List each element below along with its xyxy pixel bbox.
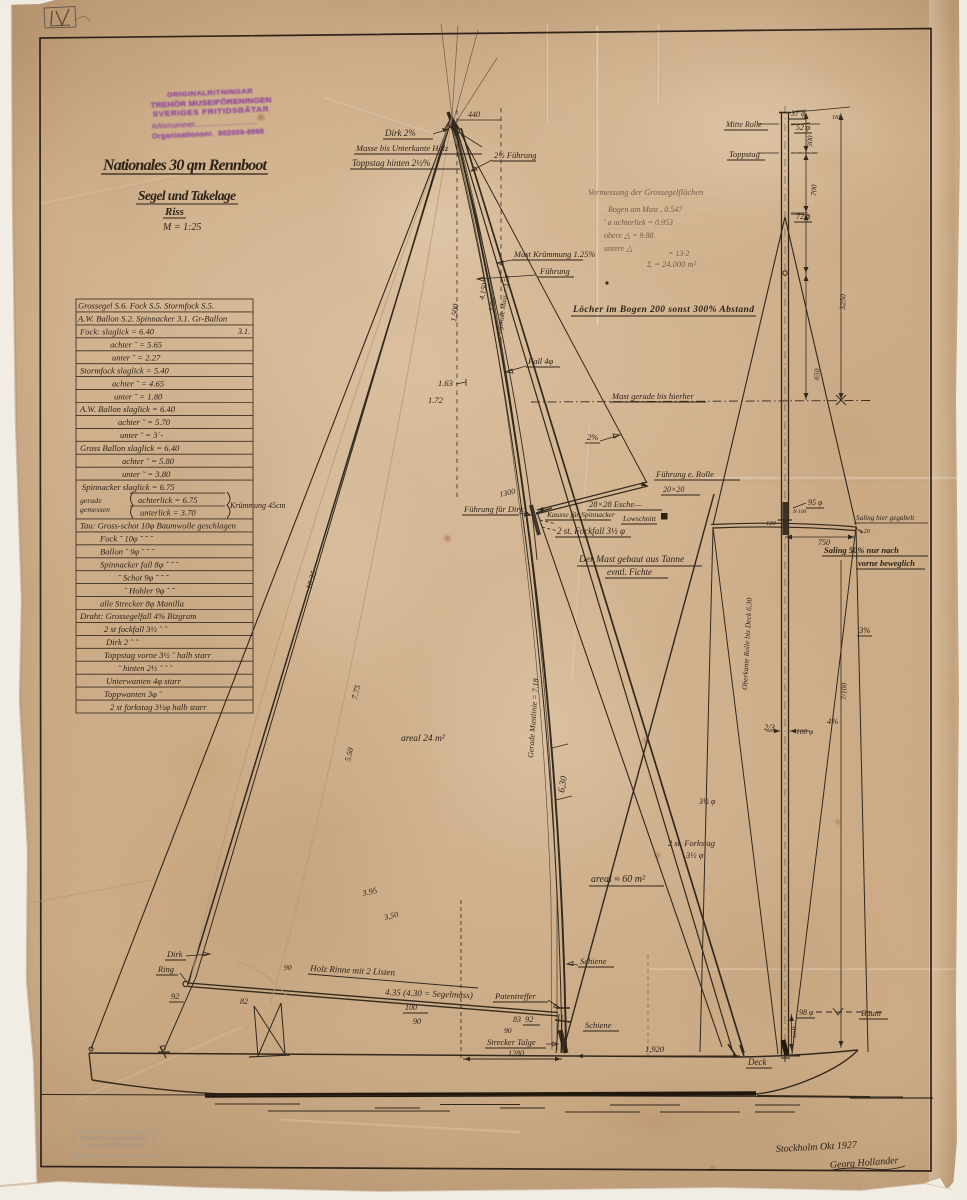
svg-text:Saling hier gegabelt: Saling hier gegabelt [856, 514, 915, 522]
svg-text:650: 650 [812, 368, 822, 380]
svg-text:Fock: slaglick = 6.: Fock: slaglick = 6.40 [79, 327, 155, 337]
svg-text:3/50: 3/50 [487, 297, 498, 313]
svg-text:Draht: Grossegelfall 4% B: Draht: Grossegelfall 4% Bizgram [79, 611, 196, 621]
svg-text:Lowschnitt: Lowschnitt [622, 514, 657, 523]
svg-text:Grossegel S.6. Fock S.5. Storm: Grossegel S.6. Fock S.5. Stormfock S.5. [78, 301, 214, 311]
svg-text:Toppstag hinten 2½%: Toppstag hinten 2½% [352, 158, 430, 168]
svg-text:Toppstag: Toppstag [729, 149, 760, 159]
svg-text:obere △ = 9.88: obere △ = 9.88 [604, 231, 653, 240]
svg-text:Tau: Gross-schot 10φ Baumwol: Tau: Gross-schot 10φ Baumwolle geschlage… [80, 521, 236, 531]
svg-text:unter ˜ = 2.27: unter ˜ = 2.27 [112, 353, 161, 363]
svg-text:1.63: 1.63 [438, 378, 453, 388]
svg-text:6,30: 6,30 [557, 775, 570, 793]
svg-text:Nationales 30 qm Rennboot: Nationales 30 qm Rennboot [102, 157, 268, 174]
svg-text:300: 300 [805, 135, 815, 148]
svg-text:Oberkante Rolle bis Deck 6.30: Oberkante Rolle bis Deck 6.30 [740, 597, 754, 690]
svg-text:achterlick = 6.75: achterlick = 6.75 [138, 495, 198, 505]
svg-text:Dirk 2 ˜ ˜: Dirk 2 ˜ ˜ [105, 637, 139, 647]
svg-text:1300: 1300 [498, 487, 516, 499]
svg-text:Dirk: Dirk [166, 949, 183, 959]
svg-text:4.150: 4.150 [477, 282, 489, 300]
svg-text:7.75: 7.75 [349, 684, 362, 701]
svg-text:↘20: ↘20 [858, 528, 871, 535]
svg-text:2 st fockfall 3½ ˜ ˜: 2 st fockfall 3½ ˜ ˜ [104, 624, 168, 634]
svg-text:Spinnacker fall 8φ ˜: Spinnacker fall 8φ ˜ ˜ ˜ [100, 560, 180, 570]
svg-text:2 st. Forkstag: 2 st. Forkstag [668, 838, 715, 848]
svg-text:Gerade Mastlinie = 7.18: Gerade Mastlinie = 7.18 [526, 678, 541, 758]
svg-text:1,920: 1,920 [645, 1044, 665, 1054]
svg-text:gemessen: gemessen [80, 505, 110, 514]
svg-text:82: 82 [240, 997, 248, 1006]
svg-text:Riss: Riss [164, 206, 184, 218]
svg-text:2½ Führung: 2½ Führung [494, 150, 537, 160]
svg-text:Führung: Führung [539, 266, 570, 276]
svg-text:N·100: N·100 [792, 509, 807, 515]
svg-text:3250: 3250 [838, 294, 848, 311]
svg-text:Bogen am Mast , 0.547: Bogen am Mast , 0.547 [608, 205, 683, 214]
svg-text:unterlick = 3.70: unterlick = 3.70 [140, 508, 196, 518]
svg-text:Gross Ballon slaglick = 6.40: Gross Ballon slaglick = 6.40 [80, 443, 180, 453]
svg-text:Schiene: Schiene [580, 956, 607, 966]
svg-text:Löcher im Bogen 200 sonst 300%: Löcher im Bogen 200 sonst 300% Abstand [572, 305, 754, 315]
svg-text:M = 1:25: M = 1:25 [162, 222, 201, 233]
svg-text:52 φ: 52 φ [796, 123, 811, 132]
svg-text:Σ = 24.000 m²: Σ = 24.000 m² [646, 259, 697, 269]
svg-text:Ring: Ring [157, 964, 174, 974]
svg-text:evntl. Fichte: evntl. Fichte [607, 567, 652, 577]
svg-text:unter ˜ = 3´-: unter ˜ = 3´- [120, 430, 163, 440]
svg-text:2%: 2% [587, 432, 598, 442]
svg-text:vorne beweglich: vorne beweglich [858, 558, 915, 568]
svg-text:Schiene: Schiene [585, 1020, 612, 1030]
svg-text:37 φ: 37 φ [790, 109, 806, 118]
svg-text:Der Mast gebaut aus Tanne: Der Mast gebaut aus Tanne [578, 555, 684, 565]
svg-text:gerade: gerade [80, 496, 102, 505]
svg-text:Spinnacker slaglick = 6.75: Spinnacker slaglick = 6.75 [82, 482, 175, 492]
svg-text:90: 90 [413, 1017, 421, 1026]
svg-text:˜ Hohler 9φ ˜ ˜: ˜ Hohler 9φ ˜ ˜ [124, 585, 176, 595]
svg-text:Toppwanten 3φ ˜: Toppwanten 3φ ˜ [104, 689, 163, 699]
svg-text:Kausse für Spinnacker: Kausse für Spinnacker [546, 510, 615, 519]
svg-text:achter ˜ = 5.80: achter ˜ = 5.80 [122, 456, 175, 466]
svg-text:alle Strecker 8φ Manilla: alle Strecker 8φ Manilla [100, 598, 184, 608]
svg-text:550: 550 [789, 1026, 798, 1038]
svg-text:= 13·2: = 13·2 [668, 249, 689, 258]
svg-text:10.35: 10.35 [303, 569, 318, 590]
svg-text:3.95: 3.95 [360, 885, 378, 898]
svg-text:achter ˜ = 4.65: achter ˜ = 4.65 [112, 378, 165, 388]
svg-text:Ballon ˜ 9φ ˜: Ballon ˜ 9φ ˜ ˜ ˜ [100, 547, 155, 557]
svg-text:Mast Krümmung 1.25%: Mast Krümmung 1.25% [513, 249, 595, 259]
svg-text:90: 90 [504, 1026, 512, 1035]
svg-text:Stockholm Okt 1927: Stockholm Okt 1927 [776, 1140, 859, 1155]
svg-text:160: 160 [832, 114, 843, 121]
svg-text:Fall 4φ: Fall 4φ [527, 356, 554, 366]
svg-text:˜ hinten 2½ ˜ ˜: ˜ hinten 2½ ˜ ˜ ˜ [118, 663, 174, 673]
svg-text:unter ˜ = 1.80: unter ˜ = 1.80 [114, 391, 163, 401]
svg-text:3,50: 3,50 [382, 910, 399, 922]
svg-text:2 st forkstag 3½φ halb sta: 2 st forkstag 3½φ halb starr [110, 702, 207, 712]
svg-text:100 φ: 100 φ [796, 727, 813, 736]
svg-text:3%: 3% [858, 625, 870, 635]
svg-text:Führung für Dirk: Führung für Dirk [463, 504, 524, 514]
svg-text:4%: 4% [827, 716, 838, 726]
svg-text:areal ≈ 60 m²: areal ≈ 60 m² [591, 874, 646, 885]
svg-text:100: 100 [405, 1003, 417, 1012]
svg-text:achter ˜ = 5.70: achter ˜ = 5.70 [118, 417, 171, 427]
svg-text:700: 700 [809, 184, 819, 196]
svg-text:A.W. Ballon slaglick = 6.40: A.W. Ballon slaglick = 6.40 [79, 404, 176, 414]
svg-text:Strecker Talge: Strecker Talge [487, 1037, 536, 1047]
svg-text:Mast gerade bis hierher: Mast gerade bis hierher [611, 391, 694, 401]
svg-text:20×20: 20×20 [663, 485, 684, 494]
svg-text:Toppstag vorne 3½ ˜ halb star: Toppstag vorne 3½ ˜ halb starr [104, 650, 212, 660]
svg-text:Vermessung der Grossegelfläche: Vermessung der Grossegelflächen [588, 187, 703, 197]
svg-text:3½ φ: 3½ φ [698, 797, 716, 806]
svg-text:Patentreffer: Patentreffer [494, 991, 536, 1001]
svg-text:A.W. Ballon S.2. Spinnacker: A.W. Ballon S.2. Spinnacker 3.1. Gr-Ball… [77, 314, 227, 324]
svg-text:achter ˜ = 5.65: achter ˜ = 5.65 [110, 340, 163, 350]
svg-text:Führung e. Rolle: Führung e. Rolle [655, 469, 714, 479]
svg-text:28×28 Esche—: 28×28 Esche— [589, 499, 642, 509]
svg-text:90: 90 [284, 963, 292, 972]
svg-text:1.72: 1.72 [428, 395, 444, 405]
svg-text:Segel und Takelage: Segel und Takelage [138, 188, 236, 203]
svg-text:2/3: 2/3 [764, 722, 775, 732]
svg-text:Krümmung 45cm: Krümmung 45cm [229, 501, 286, 510]
svg-text:98 φ: 98 φ [799, 1008, 814, 1017]
svg-text:7/100: 7/100 [839, 682, 849, 700]
svg-text:˜ a achterliek = 0.953: ˜ a achterliek = 0.953 [603, 218, 673, 227]
svg-text:areal 24 m²: areal 24 m² [401, 734, 445, 744]
svg-text:Dirk 2%: Dirk 2% [384, 128, 416, 138]
svg-text:3.1.: 3.1. [237, 327, 250, 336]
svg-text:5.50: 5.50 [343, 747, 355, 763]
svg-text:untere △: untere △ [604, 244, 632, 253]
svg-text:Fock ˜ 10φ ˜: Fock ˜ 10φ ˜ ˜ ˜ [99, 534, 154, 544]
svg-text:Saling 50% nur nach: Saling 50% nur nach [824, 545, 899, 555]
svg-text:2 st. Fockfall 3½ φ: 2 st. Fockfall 3½ φ [557, 526, 625, 536]
svg-text:92: 92 [525, 1014, 534, 1024]
svg-text:3½ φ: 3½ φ [685, 850, 704, 860]
svg-text:95 φ: 95 φ [808, 498, 823, 507]
svg-text:Deck: Deck [747, 1057, 767, 1067]
svg-text:4.35 (4.30 = Segelmass): 4.35 (4.30 = Segelmass) [385, 987, 473, 1000]
svg-text:1280: 1280 [508, 1049, 524, 1058]
svg-text:Stormfock slaglick = 5.4: Stormfock slaglick = 5.40 [80, 365, 170, 375]
svg-text:gerade Mass = 3,50: gerade Mass = 3,50 [497, 274, 512, 330]
svg-text:72 φ: 72 φ [796, 212, 811, 221]
svg-text:83: 83 [513, 1015, 521, 1024]
svg-text:440: 440 [468, 110, 480, 119]
svg-text:unter ˜ = 3.80: unter ˜ = 3.80 [122, 469, 171, 479]
svg-text:1.500: 1.500 [449, 303, 460, 322]
svg-text:Mitte Rolle: Mitte Rolle [725, 120, 762, 129]
svg-text:Unterwanten 4φ starr: Unterwanten 4φ starr [106, 676, 182, 686]
svg-text:92: 92 [171, 991, 180, 1001]
svg-text:120: 120 [766, 520, 777, 527]
svg-text:Masse bis Unterkante Holz: Masse bis Unterkante Holz [355, 143, 449, 153]
svg-text:Baum: Baum [861, 1008, 881, 1018]
svg-text:˜ Schot 9φ ˜ ˜: ˜ Schot 9φ ˜ ˜ ˜ [118, 572, 169, 582]
